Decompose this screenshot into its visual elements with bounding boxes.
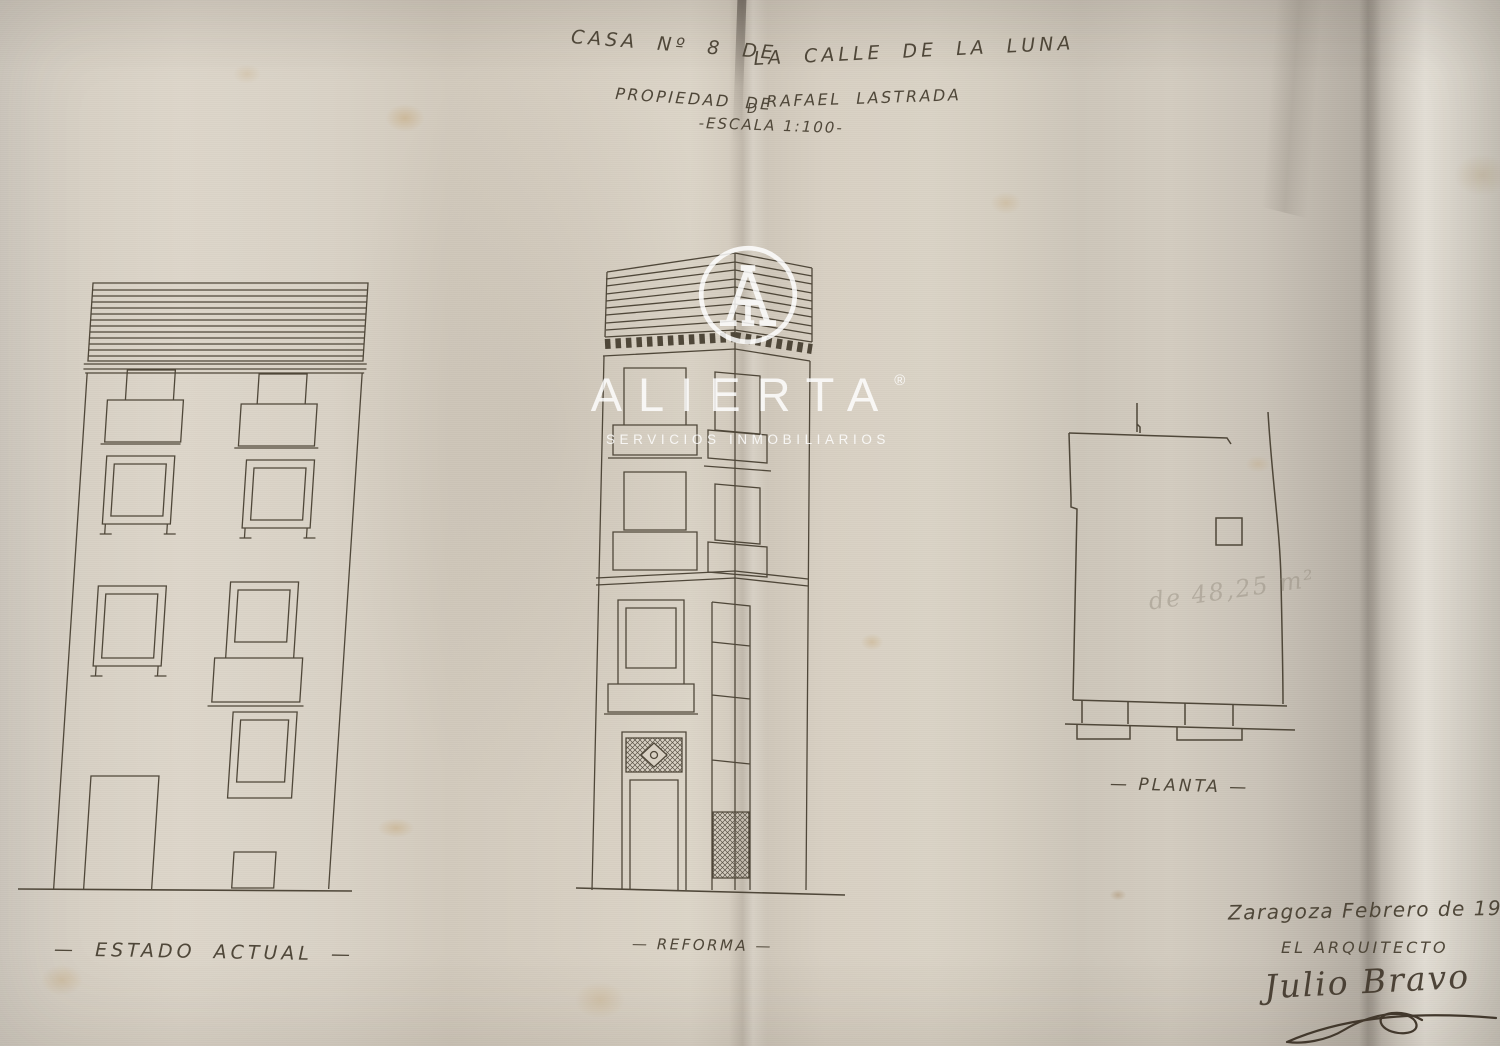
title-scale: -ESCALA 1:100- <box>698 114 844 137</box>
plan-left-wall <box>1069 433 1077 700</box>
signature-flourish <box>1282 1006 1500 1046</box>
paper-corner-crease <box>1186 0 1394 224</box>
plan-patio-shaft <box>1216 518 1242 545</box>
windows-floor4-door <box>84 712 298 889</box>
ground-line <box>18 889 352 891</box>
roof-hatching-left <box>606 262 735 330</box>
windows-floor2 <box>99 456 320 538</box>
plan-chimney-tab <box>1137 403 1140 433</box>
title-line2-right: RAFAEL LASTRADA <box>766 85 962 111</box>
plan-top-wall <box>1069 433 1231 444</box>
estado-actual-elevation <box>0 268 440 918</box>
right-facade-windows <box>704 372 771 577</box>
roof-hatching <box>88 290 367 356</box>
plan-facade-openings <box>1082 701 1233 726</box>
estado-actual-facade <box>50 283 372 889</box>
facade-walls <box>592 356 810 890</box>
left-facade-windows <box>604 368 702 714</box>
plan-party-wall <box>1268 412 1283 704</box>
reforma-label: — REFORMA — <box>632 935 773 955</box>
reforma-elevation <box>560 240 860 960</box>
ground-line <box>576 888 845 895</box>
planta-label: — PLANTA — <box>1110 774 1250 798</box>
facade-walls <box>54 373 363 889</box>
cornice-lines <box>83 364 367 373</box>
estado-actual-label: — ESTADO ACTUAL — <box>54 938 354 965</box>
dentil-course-left <box>605 337 735 344</box>
title-line1-right: LA CALLE DE LA LUNA <box>753 32 1075 70</box>
plan-bottom-wall <box>1073 700 1287 706</box>
dentil-course-right <box>735 337 812 349</box>
architect-signature: Julio Bravo <box>1263 957 1471 1007</box>
windows-floor1 <box>100 370 323 448</box>
floor-band <box>596 571 808 586</box>
cornice-bottom <box>603 349 810 361</box>
architect-role-label: EL ARQUITECTO <box>1281 938 1449 957</box>
photographed-blueprint-sheet: CASA Nº 8 DE LA CALLE DE LA LUNA PROPIED… <box>0 0 1500 1046</box>
windows-floor3 <box>89 582 312 706</box>
place-date: Zaragoza Febrero de 1915 <box>1228 895 1500 924</box>
roof-band <box>88 283 368 361</box>
title-line1-left: CASA Nº 8 DE <box>570 26 777 64</box>
flourish-sweep <box>1287 1015 1496 1042</box>
plan-street-line <box>1065 724 1295 730</box>
roof-hatching-right <box>735 262 812 334</box>
door-grille <box>713 812 749 878</box>
watermark-registered-mark: ® <box>894 372 905 389</box>
